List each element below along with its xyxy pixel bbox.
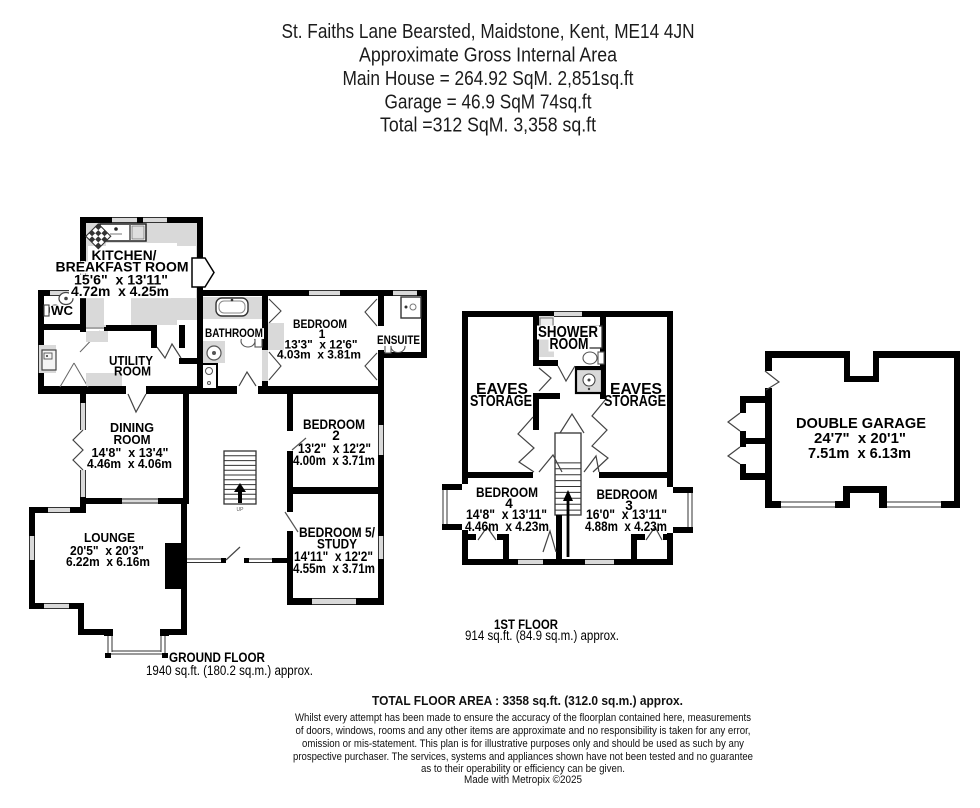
svg-text:4.46m x 4.06m: 4.46m x 4.06m (87, 456, 172, 471)
svg-text:Total =312 SqM. 3,358 sq.ft: Total =312 SqM. 3,358 sq.ft (380, 114, 596, 137)
svg-text:STORAGE: STORAGE (604, 393, 666, 410)
svg-text:4.46m x 4.23m: 4.46m x 4.23m (465, 519, 549, 534)
svg-text:of doors, windows, rooms and a: of doors, windows, rooms and any other i… (296, 725, 751, 737)
svg-text:Whilst every attempt has been: Whilst every attempt has been made to en… (295, 712, 751, 724)
svg-text:BATHROOM: BATHROOM (205, 326, 263, 340)
svg-text:WC: WC (51, 303, 74, 318)
svg-text:Made with Metropix ©2025: Made with Metropix ©2025 (464, 774, 582, 786)
svg-text:1940 sq.ft. (180.2 sq.m.) appr: 1940 sq.ft. (180.2 sq.m.) approx. (146, 663, 313, 678)
svg-text:6.22m x 6.16m: 6.22m x 6.16m (66, 554, 150, 569)
svg-text:Approximate Gross Internal Are: Approximate Gross Internal Area (359, 44, 618, 67)
svg-text:4.88m x 4.23m: 4.88m x 4.23m (585, 519, 667, 534)
svg-text:Garage = 46.9 SqM 74sq.ft: Garage = 46.9 SqM 74sq.ft (385, 91, 592, 114)
svg-text:omission or mis-statement. Thi: omission or mis-statement. This plan is … (302, 738, 744, 750)
svg-text:ROOM: ROOM (550, 336, 589, 353)
svg-text:TOTAL FLOOR AREA : 3358 sq.ft.: TOTAL FLOOR AREA : 3358 sq.ft. (312.0 sq… (372, 693, 683, 708)
svg-text:4.72m x 4.25m: 4.72m x 4.25m (71, 284, 169, 299)
svg-text:UP: UP (237, 507, 245, 513)
svg-text:914 sq.ft. (84.9 sq.m.) approx: 914 sq.ft. (84.9 sq.m.) approx. (465, 628, 619, 643)
svg-text:prospective purchaser. The ser: prospective purchaser. The services, sys… (293, 751, 753, 763)
svg-text:ROOM: ROOM (114, 364, 151, 379)
svg-text:ENSUITE: ENSUITE (377, 333, 420, 347)
svg-text:STORAGE: STORAGE (470, 393, 532, 410)
svg-text:4.55m x 3.71m: 4.55m x 3.71m (293, 561, 375, 576)
svg-text:St. Faiths Lane Bearsted, Mai: St. Faiths Lane Bearsted, Maidstone, Ken… (282, 20, 695, 43)
svg-text:4.03m x 3.81m: 4.03m x 3.81m (277, 348, 361, 362)
svg-text:7.51m x 6.13m: 7.51m x 6.13m (808, 445, 911, 462)
svg-text:4.00m x 3.71m: 4.00m x 3.71m (293, 453, 375, 468)
svg-text:Main House = 264.92 SqM. 2,851: Main House = 264.92 SqM. 2,851sq.ft (343, 67, 634, 90)
